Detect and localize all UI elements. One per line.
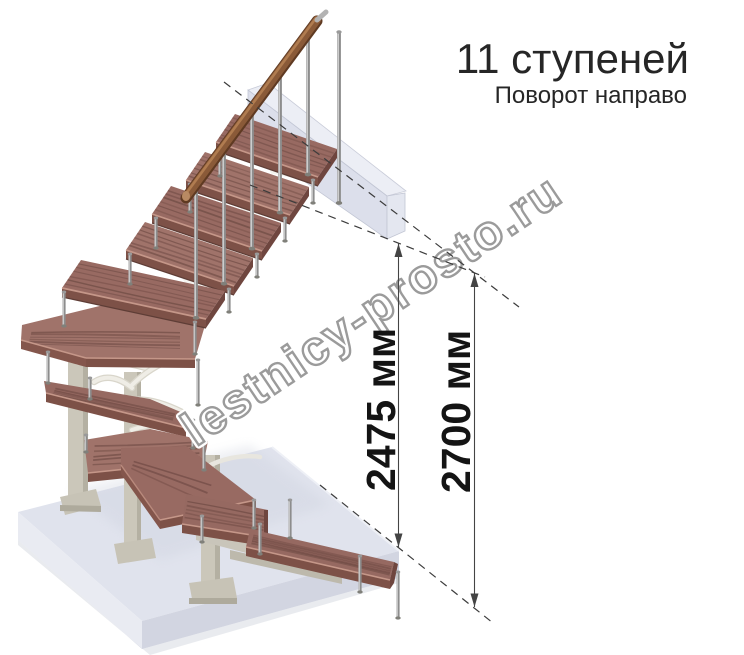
svg-text:Поворот направо: Поворот направо: [495, 82, 687, 109]
svg-text:11 ступеней: 11 ступеней: [456, 35, 689, 82]
svg-text:2700 мм: 2700 мм: [433, 330, 479, 493]
svg-text:2475 мм: 2475 мм: [358, 328, 404, 491]
